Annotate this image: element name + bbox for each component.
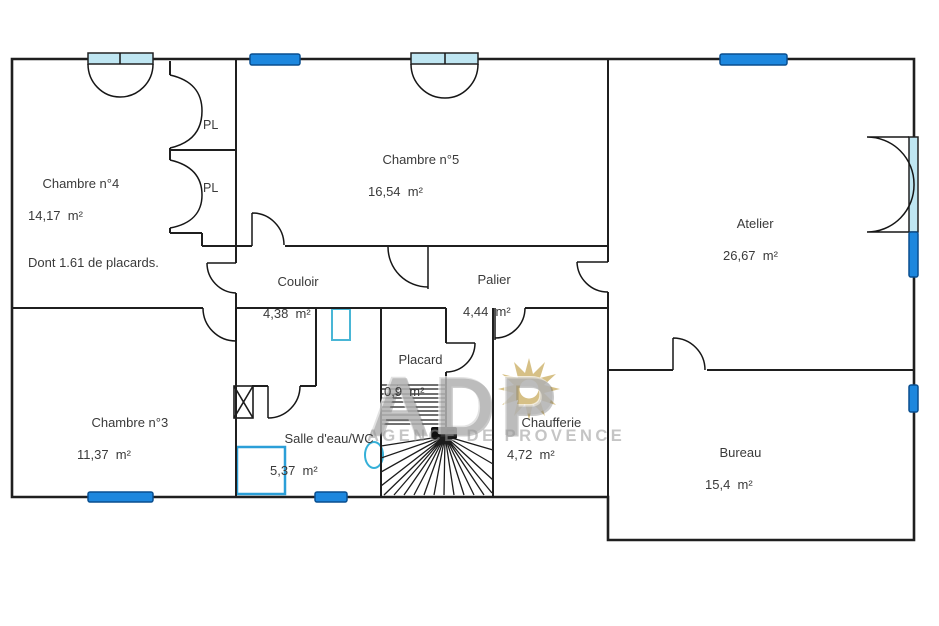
room-name: Chambre n°5 <box>382 152 459 167</box>
room-label-bureau: Bureau 15,4 m² <box>705 429 761 524</box>
room-name: Palier <box>477 272 510 287</box>
closet-label-pl-top: PL <box>203 118 218 132</box>
room-label-chambre4: Chambre n°4 14,17 m² Dont 1.61 de placar… <box>28 160 159 303</box>
room-note: Dont 1.61 de placards. <box>28 255 159 271</box>
room-name: Couloir <box>277 274 318 289</box>
room-label-placard: Placard 0,9 m² <box>384 336 443 431</box>
room-label-salle-eau: Salle d'eau/WC 5,37 m² <box>270 415 374 510</box>
room-area: 4,38 m² <box>263 306 319 322</box>
room-area: 26,67 m² <box>723 248 778 264</box>
room-label-atelier: Atelier 26,67 m² <box>723 200 778 295</box>
room-area: 14,17 m² <box>28 208 159 224</box>
room-label-couloir: Couloir 4,38 m² <box>263 258 319 353</box>
room-label-chambre5: Chambre n°5 16,54 m² <box>368 136 459 231</box>
room-area: 0,9 m² <box>384 384 443 400</box>
room-label-chaufferie: Chaufferie 4,72 m² <box>507 399 581 494</box>
room-name: Atelier <box>737 216 774 231</box>
room-name: Bureau <box>719 445 761 460</box>
room-name: Chambre n°3 <box>91 415 168 430</box>
room-area: 5,37 m² <box>270 463 374 479</box>
room-name: Placard <box>398 352 442 367</box>
floorplan-canvas: ADP AGENCE DE PROVENCE Chambre n°4 14,17… <box>0 0 939 626</box>
closet-label-pl-bottom: PL <box>203 181 218 195</box>
room-name: Chambre n°4 <box>42 176 119 191</box>
room-name: Chaufferie <box>521 415 581 430</box>
room-area: 16,54 m² <box>368 184 459 200</box>
room-name: Salle d'eau/WC <box>284 431 373 446</box>
room-area: 4,72 m² <box>507 447 581 463</box>
room-area: 11,37 m² <box>77 447 168 463</box>
room-label-chambre3: Chambre n°3 11,37 m² <box>77 399 168 494</box>
room-label-palier: Palier 4,44 m² <box>463 256 511 351</box>
room-area: 4,44 m² <box>463 304 511 320</box>
room-area: 15,4 m² <box>705 477 761 493</box>
